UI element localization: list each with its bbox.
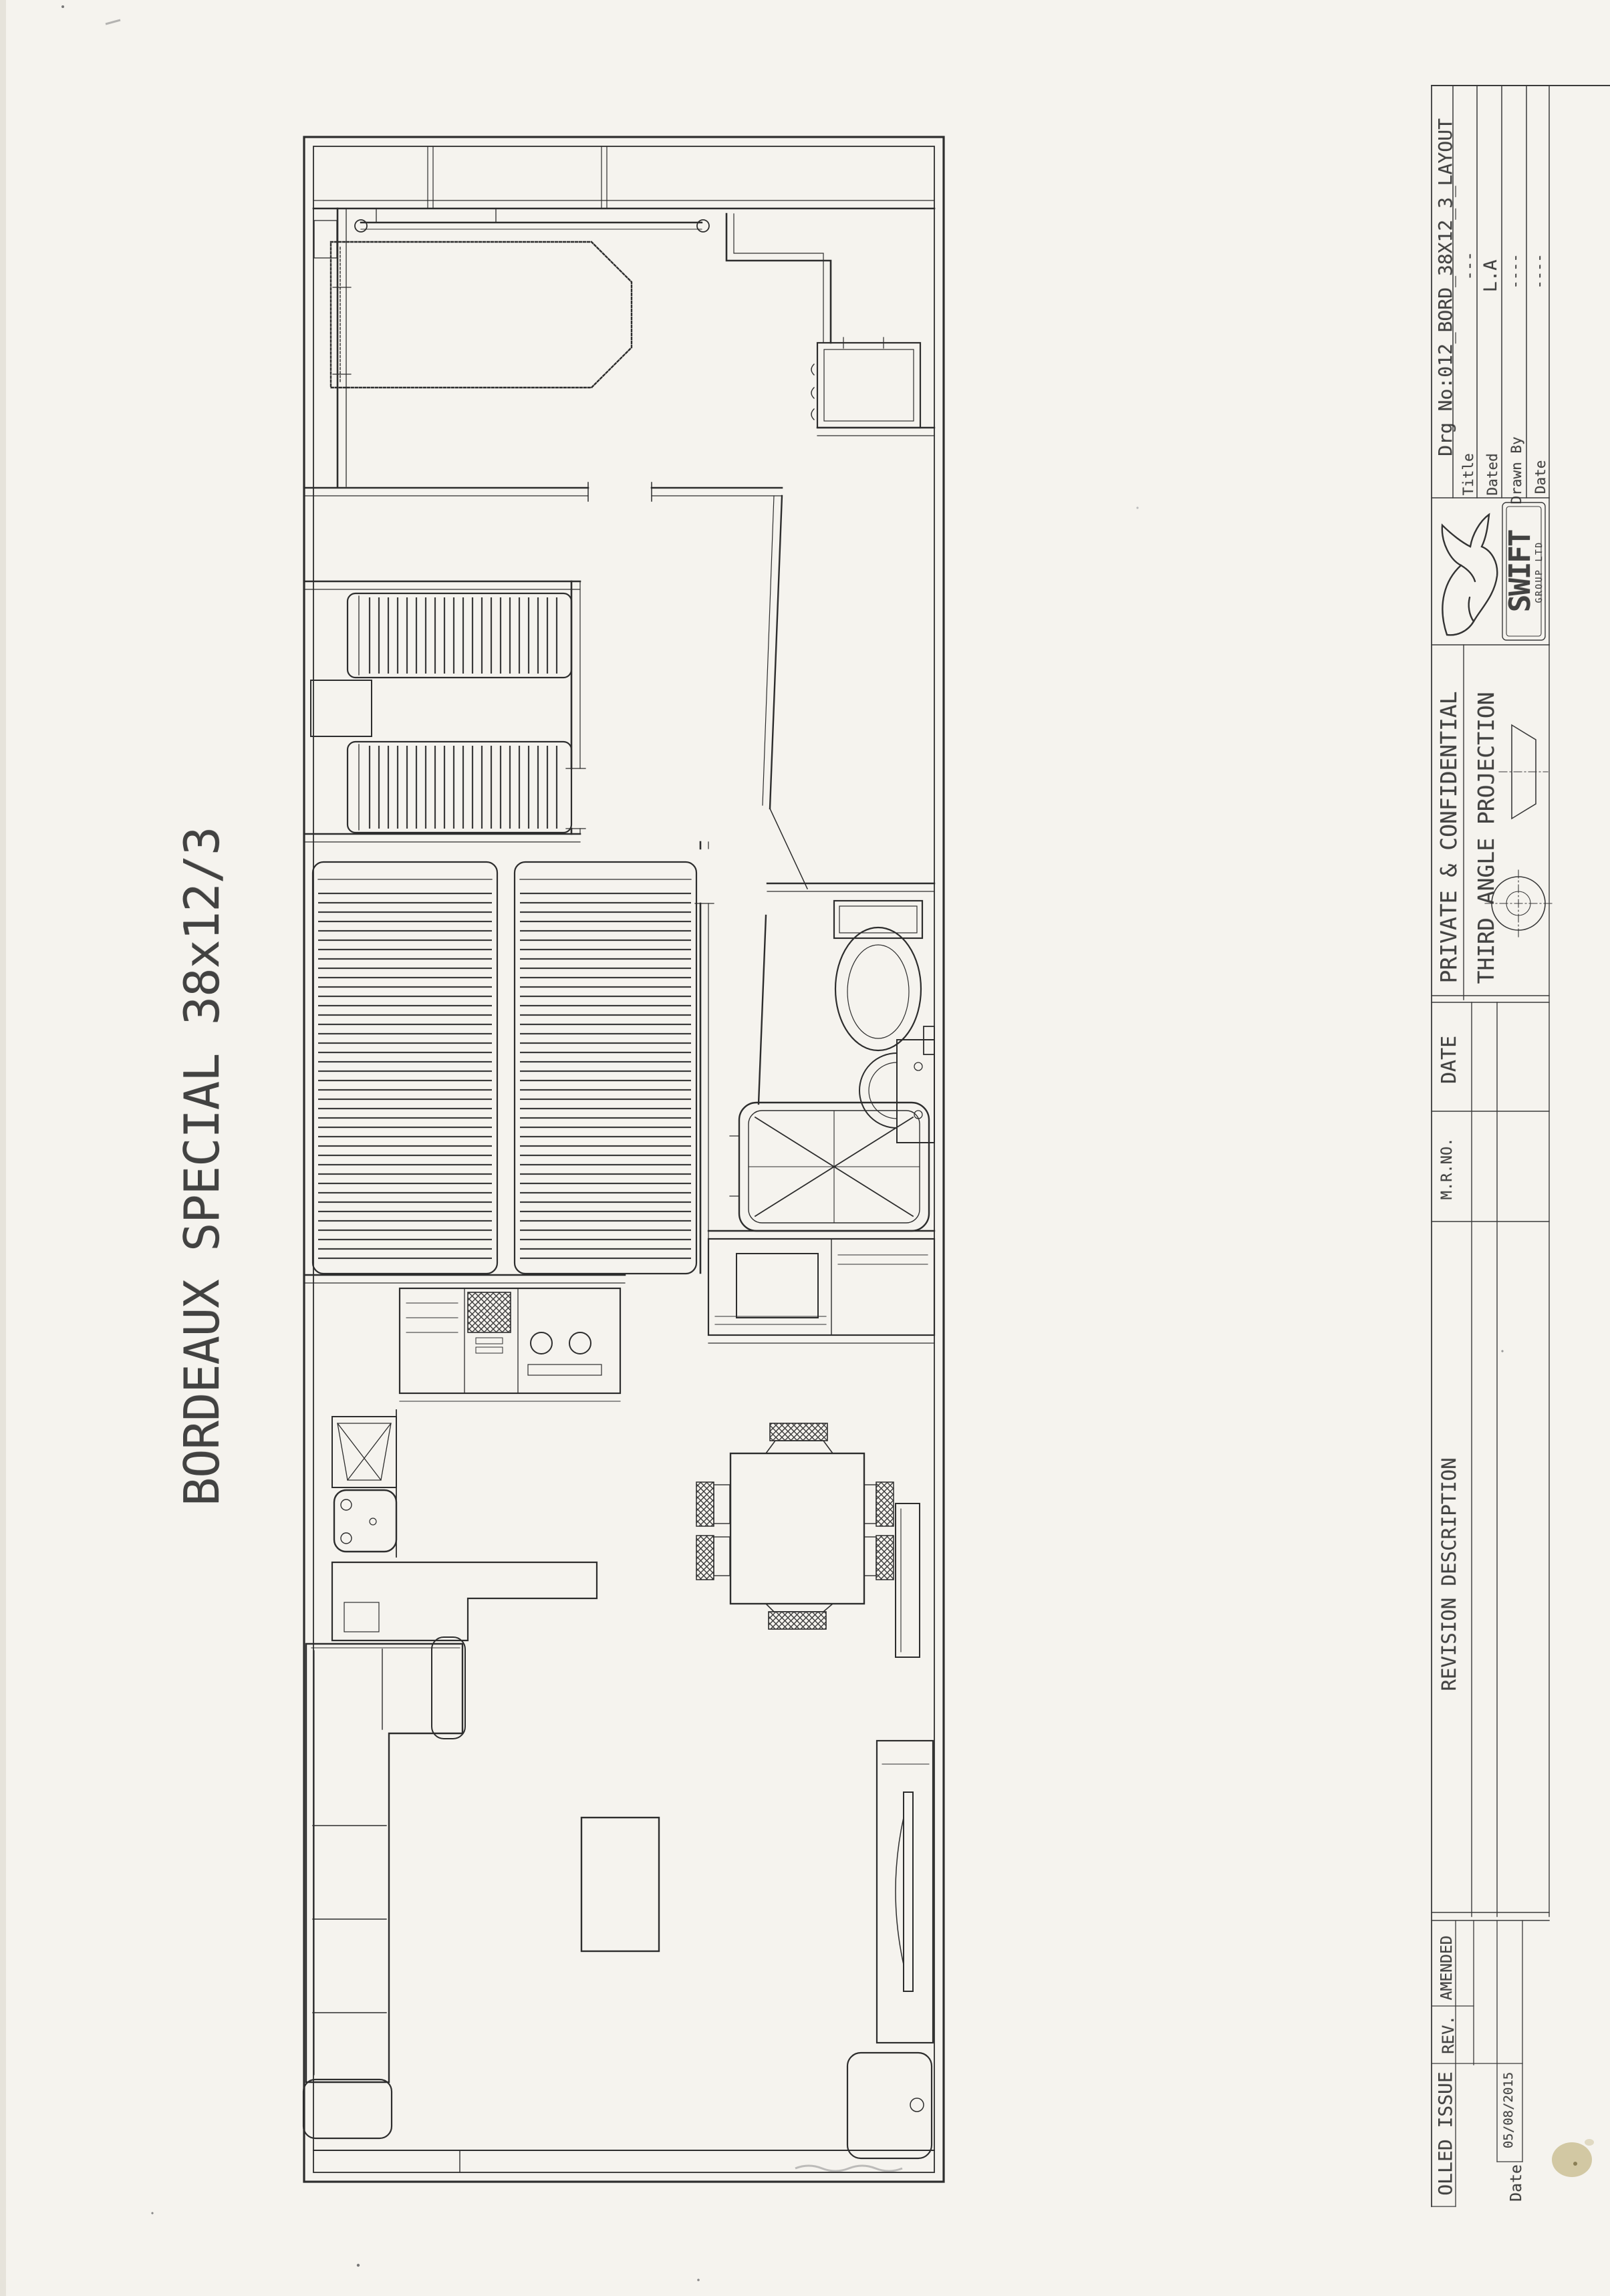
cabinet-knob: [910, 2098, 924, 2112]
issue-date-label: Date: [1508, 2162, 1525, 2204]
shower-cubicle: [730, 1103, 929, 1231]
revision-row-rev: REV.: [1440, 2011, 1457, 2058]
logo-subtitle: GROUP LTD: [1534, 521, 1545, 623]
door-jambs: [588, 482, 652, 501]
field-label-date: Date: [1532, 458, 1549, 496]
lounge: [303, 1637, 933, 2158]
bathroom: [708, 883, 934, 1239]
master-bedroom: [304, 208, 831, 501]
field-label-title: Title: [1460, 454, 1477, 494]
confidential-note: PRIVATE & CONFIDENTIAL: [1436, 680, 1461, 994]
dining-chair: [766, 1604, 833, 1629]
kitchen: [332, 1239, 934, 1640]
single-bed: [313, 862, 497, 1274]
room-divider-wall: [726, 214, 831, 343]
single-bed: [348, 593, 571, 678]
projection-note: THIRD ANGLE PROJECTION: [1473, 680, 1498, 996]
side-cabinet: [847, 2053, 932, 2158]
scanned-floor-plan-sheet: { "document": { "plan_title": "BORDEAUX …: [0, 0, 1610, 2296]
field-value-title: ---: [1460, 246, 1478, 286]
floor-plan-drawing: [0, 0, 1610, 2296]
sideboard: [896, 1503, 920, 1657]
revision-col-date: DATE: [1438, 1029, 1461, 1091]
single-bed: [348, 742, 571, 833]
title-block-ruling: [1432, 86, 1610, 2206]
single-bed: [515, 862, 696, 1274]
field-label-drawn-by: Drawn By: [1508, 438, 1525, 503]
corner-sofa: [303, 1637, 465, 2138]
dining-chair: [696, 1482, 730, 1526]
coffee-table: [581, 1818, 659, 1951]
wardrobe-rail: [355, 208, 709, 232]
plan-title: BORDEAUX SPECIAL 38x12/3: [168, 819, 235, 1514]
swift-logo-bird-icon: [1442, 515, 1497, 635]
kitchen-sink: [332, 1410, 396, 1557]
revision-col-description: REVISION DESCRIPTION: [1437, 1441, 1461, 1708]
logo-name: SWIFT: [1505, 509, 1536, 633]
twin-bedroom-2: [304, 842, 714, 1283]
dining-chair: [696, 1536, 730, 1580]
field-label-dated: Dated: [1484, 452, 1501, 497]
revision-row-amended: AMENDED: [1438, 1930, 1456, 2006]
paper-stain: [1552, 2139, 1594, 2177]
wc-toilet: [834, 901, 922, 1050]
paper-artifacts: [0, 0, 1594, 2296]
dining-chair: [864, 1482, 894, 1526]
dining-chair: [766, 1423, 833, 1453]
dining-table: [730, 1453, 864, 1604]
revision-col-mr-no: M.R.NO.: [1438, 1133, 1457, 1204]
tv-screen: [904, 1792, 913, 1991]
dining-area: [696, 1423, 920, 1657]
kitchen-unit-right: [708, 1239, 934, 1343]
field-value-dated: L.A: [1480, 255, 1501, 297]
hinge-marks: [811, 364, 814, 420]
issue-date: 05/08/2015: [1500, 2069, 1517, 2152]
bedside-cabinet: [311, 680, 372, 736]
wardrobe: [314, 208, 351, 486]
field-value-drawn-by: ----: [1507, 250, 1524, 293]
airing-cupboard: [811, 337, 934, 436]
revision-row-issue: OLLED ISSUE: [1434, 2067, 1457, 2200]
tv-unit: [877, 1741, 933, 2043]
door-leaf: [770, 809, 807, 889]
field-value-date: ----: [1531, 250, 1549, 293]
cooker-hob: [400, 1288, 620, 1401]
master-bed: [331, 242, 632, 388]
drg-number: Drg No:012_BORD_38X12_3_LAYOUT: [1434, 96, 1457, 478]
twin-bedroom-1: [304, 581, 585, 842]
worktop: [332, 1562, 597, 1640]
hallway-walls: [759, 496, 807, 1104]
dining-chair: [864, 1536, 894, 1580]
window-mullions: [428, 146, 607, 208]
